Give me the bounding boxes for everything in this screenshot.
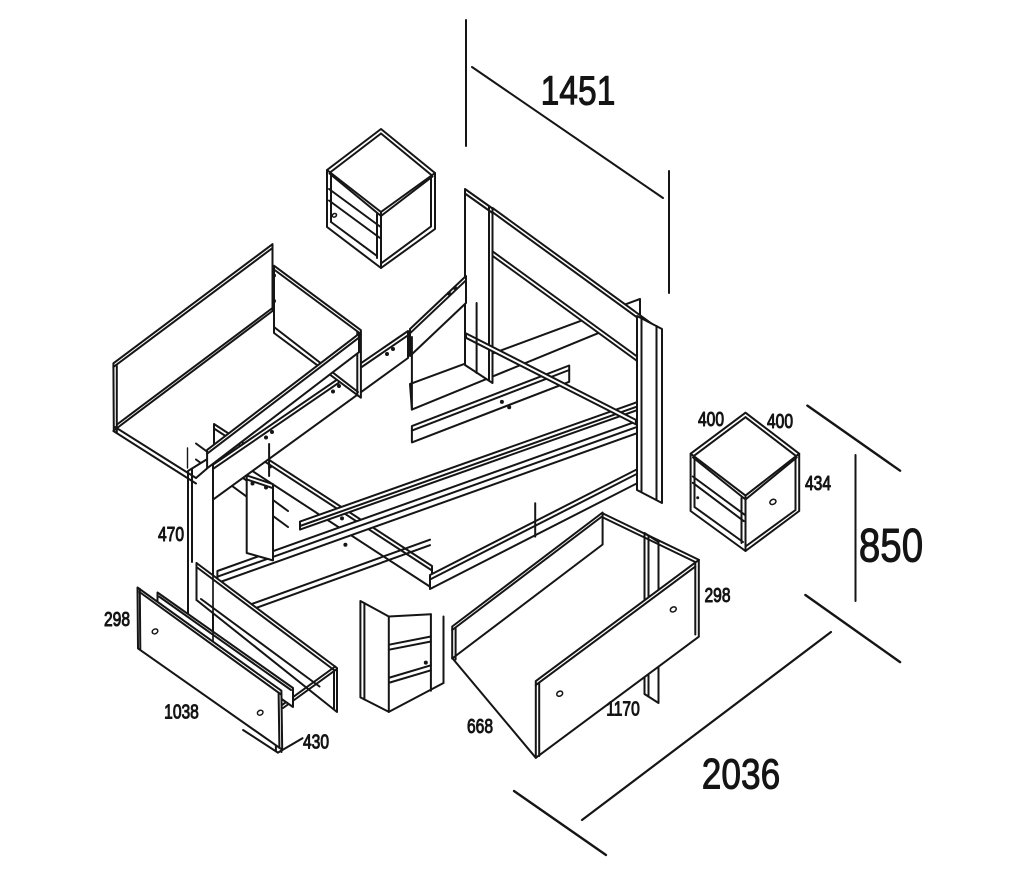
svg-text:1038: 1038 xyxy=(164,701,199,723)
svg-text:430: 430 xyxy=(303,731,329,753)
svg-text:400: 400 xyxy=(767,410,793,432)
svg-text:298: 298 xyxy=(104,608,130,630)
svg-text:2036: 2036 xyxy=(702,750,780,798)
svg-text:1170: 1170 xyxy=(606,698,640,720)
svg-text:850: 850 xyxy=(859,520,923,572)
svg-text:298: 298 xyxy=(704,584,730,606)
svg-text:1451: 1451 xyxy=(541,67,616,113)
svg-text:434: 434 xyxy=(805,472,831,494)
svg-text:668: 668 xyxy=(467,715,493,737)
svg-text:400: 400 xyxy=(698,408,724,430)
svg-text:470: 470 xyxy=(158,523,184,545)
